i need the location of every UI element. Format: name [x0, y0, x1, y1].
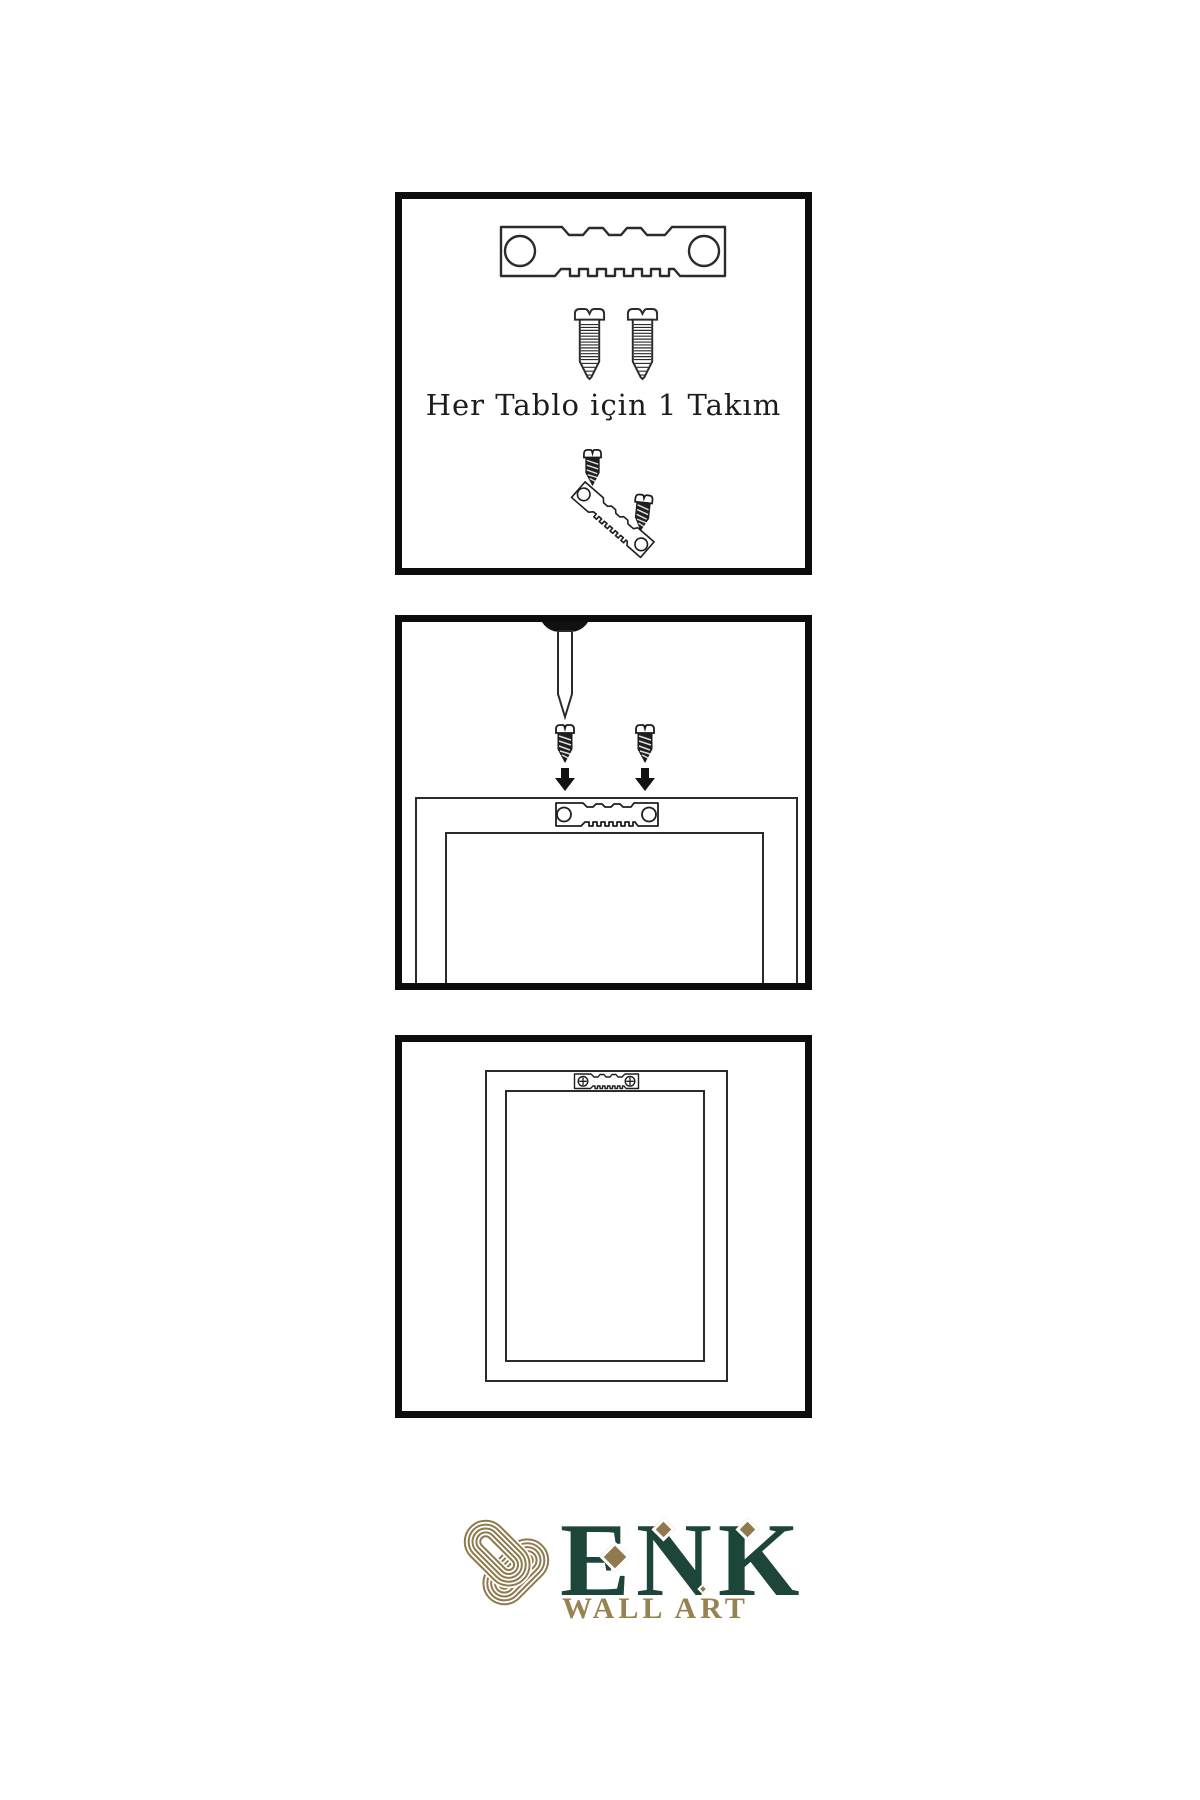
nail-icon [542, 622, 588, 722]
instruction-sheet: Her Tablo için 1 Takım [0, 0, 1200, 1800]
screw-icon [572, 305, 607, 381]
screw-icon [625, 305, 660, 381]
sawtooth-hanger-icon [498, 225, 728, 278]
down-arrow-icon [634, 768, 656, 792]
dark-screw-icon [554, 723, 576, 765]
step-panel-hang-frame [395, 1035, 812, 1418]
sawtooth-hanger-with-screws-icon [573, 1073, 640, 1090]
dark-screw-icon [630, 492, 655, 534]
sawtooth-hanger-icon [554, 802, 660, 828]
step1-caption: Her Tablo için 1 Takım [402, 388, 805, 422]
brand-tagline: WALL ART [562, 1594, 749, 1624]
step-panel-hardware-kit: Her Tablo için 1 Takım [395, 192, 812, 575]
step-panel-install [395, 615, 812, 990]
down-arrow-icon [554, 768, 576, 792]
frame-front-inner-edge [505, 1090, 705, 1362]
knot-icon [443, 1498, 570, 1627]
frame-back-inner-edge [445, 832, 764, 990]
dark-screw-icon [634, 723, 656, 765]
